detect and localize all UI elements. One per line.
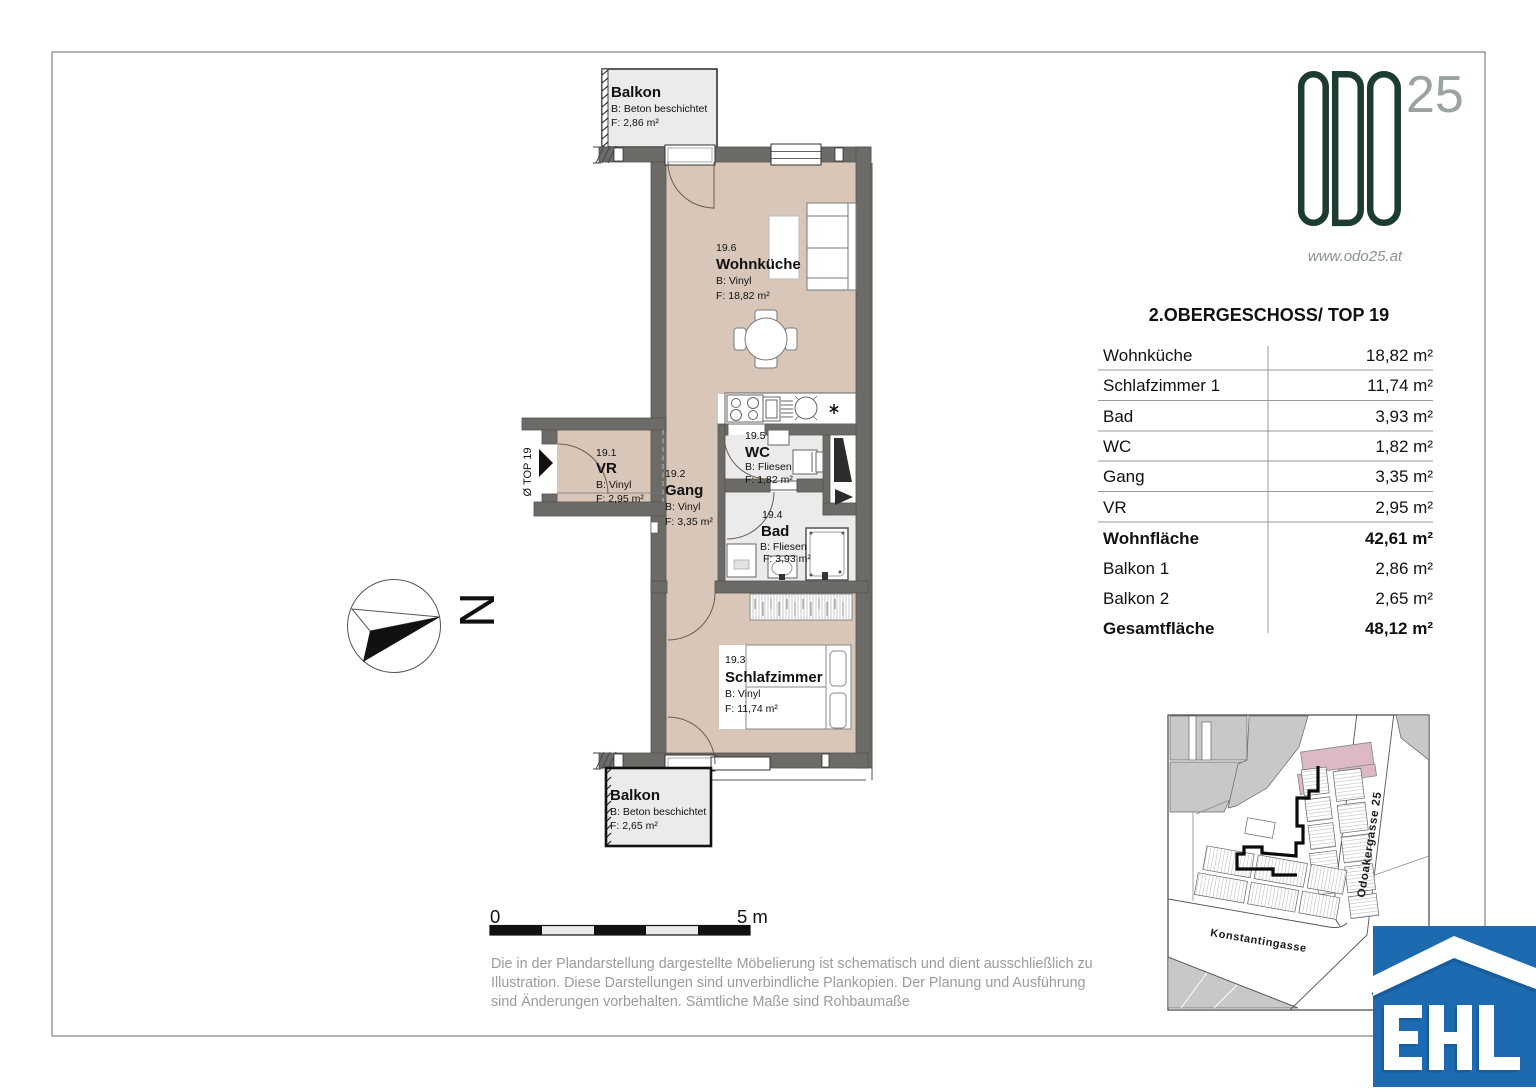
- svg-text:Illustration. Diese Darstellun: Illustration. Diese Darstellungen sind u…: [491, 975, 1086, 991]
- svg-text:F: 18,82 m²: F: 18,82 m²: [716, 290, 770, 302]
- svg-text:F: 11,74 m²: F: 11,74 m²: [725, 703, 778, 715]
- svg-text:48,12 m²: 48,12 m²: [1365, 619, 1433, 638]
- svg-text:Ø TOP 19: Ø TOP 19: [522, 448, 534, 497]
- svg-text:B: Beton beschichtet: B: Beton beschichtet: [610, 806, 706, 818]
- svg-text:WC: WC: [745, 444, 770, 461]
- svg-text:3,35 m²: 3,35 m²: [1375, 467, 1433, 486]
- svg-text:VR: VR: [596, 460, 617, 477]
- svg-text:Schlafzimmer: Schlafzimmer: [725, 669, 823, 686]
- svg-text:F: 2,86 m²: F: 2,86 m²: [611, 117, 659, 129]
- svg-text:B: Fliesen: B: Fliesen: [760, 541, 807, 553]
- svg-text:Balkon: Balkon: [611, 84, 661, 101]
- svg-text:1,82 m²: 1,82 m²: [1375, 437, 1433, 456]
- svg-text:Bad: Bad: [761, 523, 789, 540]
- svg-text:42,61 m²: 42,61 m²: [1365, 529, 1433, 548]
- svg-text:F: 2,95 m²: F: 2,95 m²: [596, 493, 644, 505]
- svg-text:2,65 m²: 2,65 m²: [1375, 589, 1433, 608]
- svg-text:Gesamtfläche: Gesamtfläche: [1103, 619, 1215, 638]
- svg-text:www.odo25.at: www.odo25.at: [1308, 248, 1403, 265]
- svg-text:B: Fliesen: B: Fliesen: [745, 461, 792, 473]
- svg-text:3,93 m²: 3,93 m²: [1375, 407, 1433, 426]
- svg-text:VR: VR: [1103, 498, 1127, 517]
- svg-text:Balkon: Balkon: [610, 787, 660, 804]
- svg-text:F: 3,93 m²: F: 3,93 m²: [763, 553, 811, 565]
- svg-text:2,86 m²: 2,86 m²: [1375, 559, 1433, 578]
- svg-text:19.5: 19.5: [745, 430, 766, 442]
- svg-text:N: N: [449, 592, 503, 627]
- svg-text:Gang: Gang: [1103, 467, 1145, 486]
- svg-text:sind Änderungen vorbehalten. S: sind Änderungen vorbehalten. Sämtliche M…: [491, 993, 910, 1010]
- svg-text:2.OBERGESCHOSS/ TOP 19: 2.OBERGESCHOSS/ TOP 19: [1149, 305, 1389, 325]
- svg-text:B: Beton beschichtet: B: Beton beschichtet: [611, 103, 707, 115]
- svg-text:2,95 m²: 2,95 m²: [1375, 498, 1433, 517]
- svg-text:19.3: 19.3: [725, 654, 746, 666]
- svg-text:B: Vinyl: B: Vinyl: [665, 501, 700, 513]
- svg-text:Bad: Bad: [1103, 407, 1133, 426]
- svg-text:Die in der Plandarstellung dar: Die in der Plandarstellung dargestellte …: [491, 956, 1093, 972]
- svg-text:Schlafzimmer 1: Schlafzimmer 1: [1103, 376, 1220, 395]
- svg-text:Wohnküche: Wohnküche: [716, 256, 801, 273]
- svg-text:B: Vinyl: B: Vinyl: [596, 479, 631, 491]
- svg-text:F: 2,65 m²: F: 2,65 m²: [610, 820, 658, 832]
- svg-text:Balkon 2: Balkon 2: [1103, 589, 1169, 608]
- svg-text:18,82 m²: 18,82 m²: [1366, 346, 1433, 365]
- svg-text:19.1: 19.1: [596, 447, 617, 459]
- svg-text:25: 25: [1406, 66, 1464, 124]
- svg-text:Balkon 1: Balkon 1: [1103, 559, 1169, 578]
- svg-text:B: Vinyl: B: Vinyl: [725, 688, 760, 700]
- svg-text:0: 0: [490, 906, 500, 927]
- svg-text:F: 3,35 m²: F: 3,35 m²: [665, 516, 713, 528]
- svg-text:19.2: 19.2: [665, 468, 686, 480]
- svg-text:Wohnfläche: Wohnfläche: [1103, 529, 1199, 548]
- svg-text:Wohnküche: Wohnküche: [1103, 346, 1192, 365]
- svg-text:19.6: 19.6: [716, 242, 737, 254]
- svg-text:Gang: Gang: [665, 482, 703, 499]
- svg-text:11,74 m²: 11,74 m²: [1367, 376, 1433, 395]
- svg-text:WC: WC: [1103, 437, 1131, 456]
- svg-text:19.4: 19.4: [762, 509, 783, 521]
- svg-text:5 m: 5 m: [737, 906, 768, 927]
- svg-text:B: Vinyl: B: Vinyl: [716, 275, 751, 287]
- svg-text:F: 1,82 m²: F: 1,82 m²: [745, 474, 793, 486]
